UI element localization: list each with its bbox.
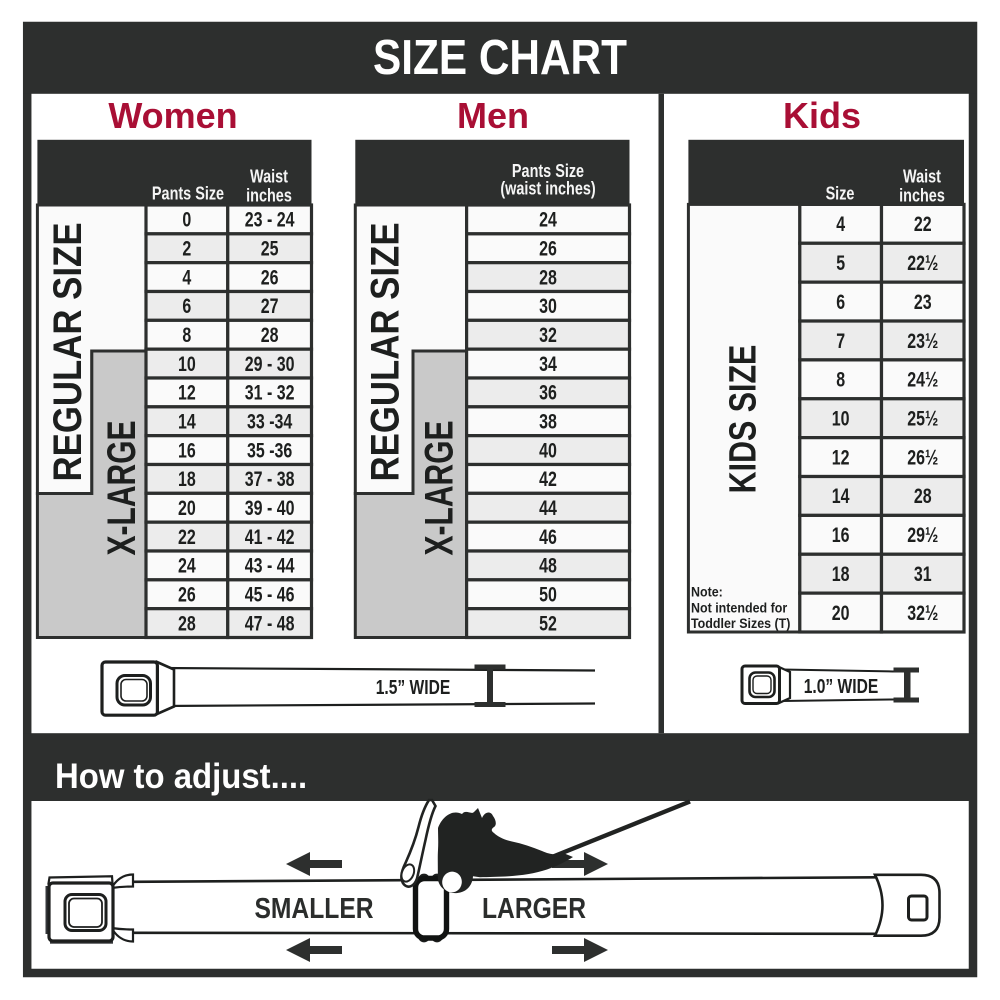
svg-text:32: 32 (539, 323, 557, 347)
svg-text:X-LARGE: X-LARGE (418, 421, 462, 556)
svg-text:47 - 48: 47 - 48 (245, 611, 295, 635)
svg-text:inches: inches (246, 185, 292, 206)
svg-text:4: 4 (836, 212, 845, 236)
svg-text:SMALLER: SMALLER (254, 892, 373, 924)
svg-text:29½: 29½ (907, 523, 938, 547)
svg-text:43 - 44: 43 - 44 (245, 554, 295, 578)
svg-text:2: 2 (182, 236, 191, 260)
svg-text:24: 24 (178, 554, 196, 578)
svg-text:1.5” WIDE: 1.5” WIDE (376, 676, 451, 698)
svg-text:20: 20 (832, 601, 850, 625)
svg-text:23½: 23½ (907, 329, 938, 353)
svg-text:16: 16 (178, 438, 196, 462)
svg-text:31 - 32: 31 - 32 (245, 381, 295, 405)
svg-text:38: 38 (539, 409, 557, 433)
svg-text:30: 30 (539, 294, 557, 318)
svg-text:Note:: Note: (691, 584, 723, 600)
svg-text:6: 6 (836, 290, 845, 314)
svg-text:Men: Men (457, 95, 529, 136)
svg-text:5: 5 (836, 251, 845, 275)
svg-text:29 - 30: 29 - 30 (245, 352, 295, 376)
svg-text:39 - 40: 39 - 40 (245, 496, 295, 520)
svg-text:Size: Size (826, 183, 855, 204)
svg-text:33 -34: 33 -34 (247, 409, 293, 433)
svg-text:10: 10 (178, 352, 196, 376)
svg-text:18: 18 (832, 562, 850, 586)
svg-text:7: 7 (836, 329, 845, 353)
svg-text:45 - 46: 45 - 46 (245, 582, 295, 606)
svg-text:26: 26 (539, 236, 557, 260)
svg-text:35 -36: 35 -36 (247, 438, 292, 462)
svg-text:12: 12 (178, 381, 196, 405)
svg-text:31: 31 (914, 562, 932, 586)
svg-text:4: 4 (182, 265, 191, 289)
svg-text:22½: 22½ (907, 251, 938, 275)
svg-text:KIDS SIZE: KIDS SIZE (722, 345, 764, 494)
svg-text:12: 12 (832, 445, 850, 469)
svg-text:Not intended for: Not intended for (691, 600, 787, 616)
svg-text:0: 0 (182, 208, 191, 232)
svg-text:23: 23 (914, 290, 932, 314)
svg-text:Kids: Kids (783, 95, 861, 136)
svg-text:10: 10 (832, 406, 850, 430)
svg-text:40: 40 (539, 438, 557, 462)
svg-text:41 - 42: 41 - 42 (245, 525, 295, 549)
svg-text:36: 36 (539, 381, 557, 405)
svg-text:8: 8 (182, 323, 191, 347)
svg-text:27: 27 (261, 294, 279, 318)
svg-text:26½: 26½ (907, 445, 938, 469)
svg-text:50: 50 (539, 582, 557, 606)
svg-text:How to adjust....: How to adjust.... (55, 757, 307, 796)
svg-text:18: 18 (178, 467, 196, 491)
svg-text:1.0” WIDE: 1.0” WIDE (804, 675, 879, 697)
svg-text:inches: inches (899, 185, 945, 206)
svg-text:28: 28 (539, 265, 557, 289)
svg-text:REGULAR SIZE: REGULAR SIZE (45, 222, 90, 481)
svg-text:28: 28 (914, 484, 932, 508)
svg-text:34: 34 (539, 352, 557, 376)
svg-text:Pants Size: Pants Size (152, 183, 224, 204)
svg-text:14: 14 (832, 484, 850, 508)
svg-text:26: 26 (261, 265, 279, 289)
svg-text:16: 16 (832, 523, 850, 547)
svg-text:6: 6 (182, 294, 191, 318)
svg-text:Women: Women (108, 95, 237, 136)
svg-text:52: 52 (539, 611, 557, 635)
svg-text:REGULAR SIZE: REGULAR SIZE (362, 222, 407, 481)
svg-text:22: 22 (178, 525, 196, 549)
svg-text:48: 48 (539, 554, 557, 578)
svg-text:20: 20 (178, 496, 196, 520)
svg-text:44: 44 (539, 496, 557, 520)
svg-text:LARGER: LARGER (482, 892, 586, 924)
svg-text:Toddler Sizes (T): Toddler Sizes (T) (691, 615, 790, 631)
svg-text:23 - 24: 23 - 24 (245, 208, 295, 232)
svg-text:28: 28 (178, 611, 196, 635)
svg-text:X-LARGE: X-LARGE (100, 421, 144, 556)
svg-text:26: 26 (178, 582, 196, 606)
svg-text:24: 24 (539, 208, 557, 232)
svg-text:25½: 25½ (907, 406, 938, 430)
svg-text:(waist inches): (waist inches) (500, 178, 595, 199)
svg-text:SIZE CHART: SIZE CHART (373, 30, 627, 85)
svg-text:32½: 32½ (907, 601, 938, 625)
svg-text:28: 28 (261, 323, 279, 347)
svg-text:24½: 24½ (907, 367, 938, 391)
svg-text:8: 8 (836, 367, 845, 391)
svg-text:42: 42 (539, 467, 557, 491)
svg-text:22: 22 (914, 212, 932, 236)
svg-text:37 - 38: 37 - 38 (245, 467, 295, 491)
svg-text:46: 46 (539, 525, 557, 549)
svg-text:25: 25 (261, 236, 279, 260)
svg-text:14: 14 (178, 409, 196, 433)
